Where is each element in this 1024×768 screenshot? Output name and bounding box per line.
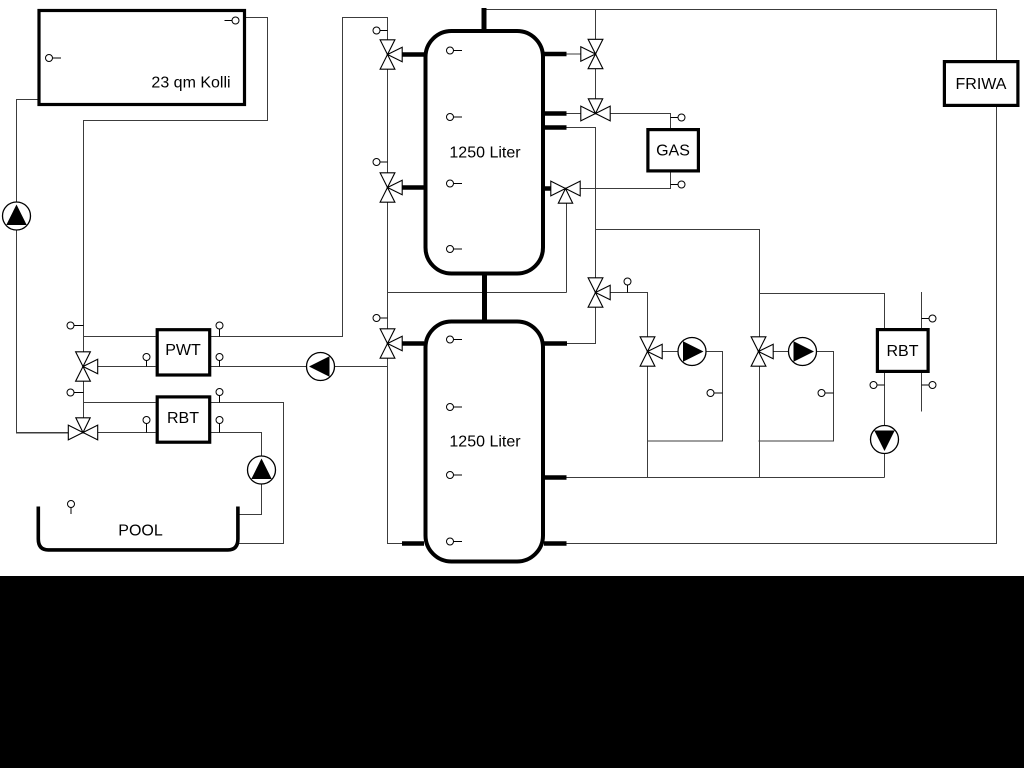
svg-text:GAS: GAS	[656, 143, 690, 160]
svg-text:RBT: RBT	[887, 343, 919, 360]
svg-text:FRIWA: FRIWA	[956, 76, 1007, 93]
svg-text:1250 Liter: 1250 Liter	[449, 434, 521, 451]
svg-text:RBT: RBT	[167, 410, 199, 427]
svg-text:PWT: PWT	[165, 342, 201, 359]
svg-text:1250 Liter: 1250 Liter	[449, 145, 521, 162]
svg-text:23 qm Kolli: 23 qm Kolli	[151, 75, 230, 92]
svg-text:POOL: POOL	[118, 523, 163, 540]
